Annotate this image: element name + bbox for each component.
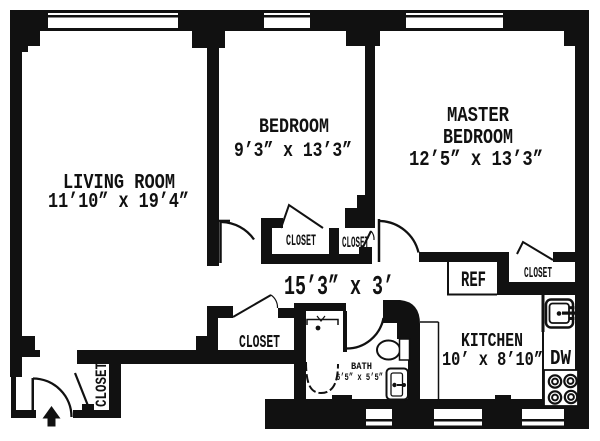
- svg-text:9’3” x 13’3”: 9’3” x 13’3”: [234, 140, 352, 163]
- svg-text:BEDROOM: BEDROOM: [443, 127, 513, 150]
- svg-text:12’5” x 13’3”: 12’5” x 13’3”: [409, 149, 543, 172]
- svg-text:CLOSET: CLOSET: [286, 232, 316, 250]
- svg-text:CLOSET: CLOSET: [524, 265, 552, 282]
- svg-text:CLOSET: CLOSET: [239, 333, 280, 353]
- svg-text:BEDROOM: BEDROOM: [259, 116, 329, 139]
- svg-text:6’5” x 5’5”: 6’5” x 5’5”: [336, 372, 383, 384]
- svg-text:CLOSET: CLOSET: [93, 362, 111, 407]
- svg-text:BATH: BATH: [351, 362, 372, 373]
- svg-text:CLOSET: CLOSET: [342, 234, 369, 252]
- svg-text:10’ x 8’10”: 10’ x 8’10”: [442, 349, 543, 371]
- svg-text:MASTER: MASTER: [447, 105, 509, 128]
- svg-text:15’3” x 3’: 15’3” x 3’: [284, 273, 394, 303]
- svg-text:11’10” x 19’4”: 11’10” x 19’4”: [48, 191, 189, 214]
- svg-text:REF: REF: [461, 268, 486, 293]
- svg-text:DW: DW: [550, 348, 571, 371]
